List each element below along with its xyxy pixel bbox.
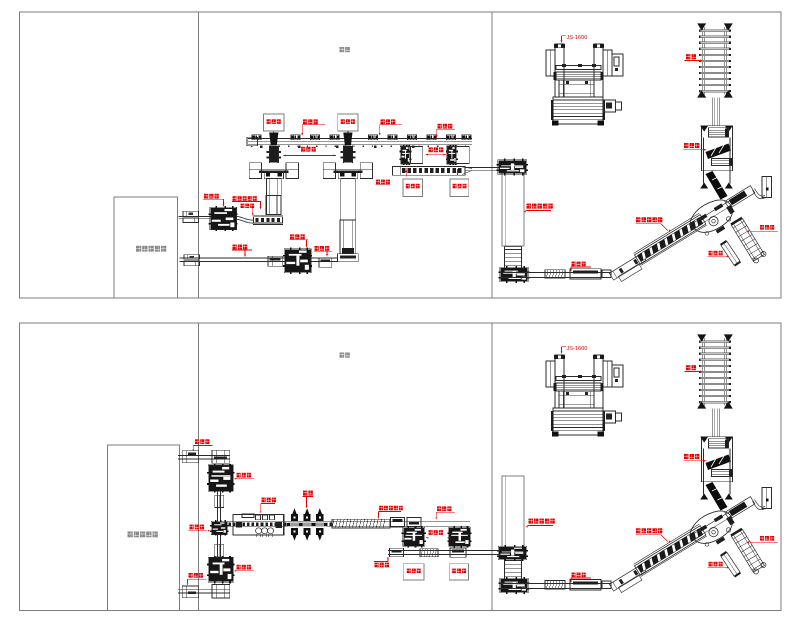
svg-text:JS-1600: JS-1600 xyxy=(567,346,588,352)
svg-text:JS-1600: JS-1600 xyxy=(567,35,588,41)
